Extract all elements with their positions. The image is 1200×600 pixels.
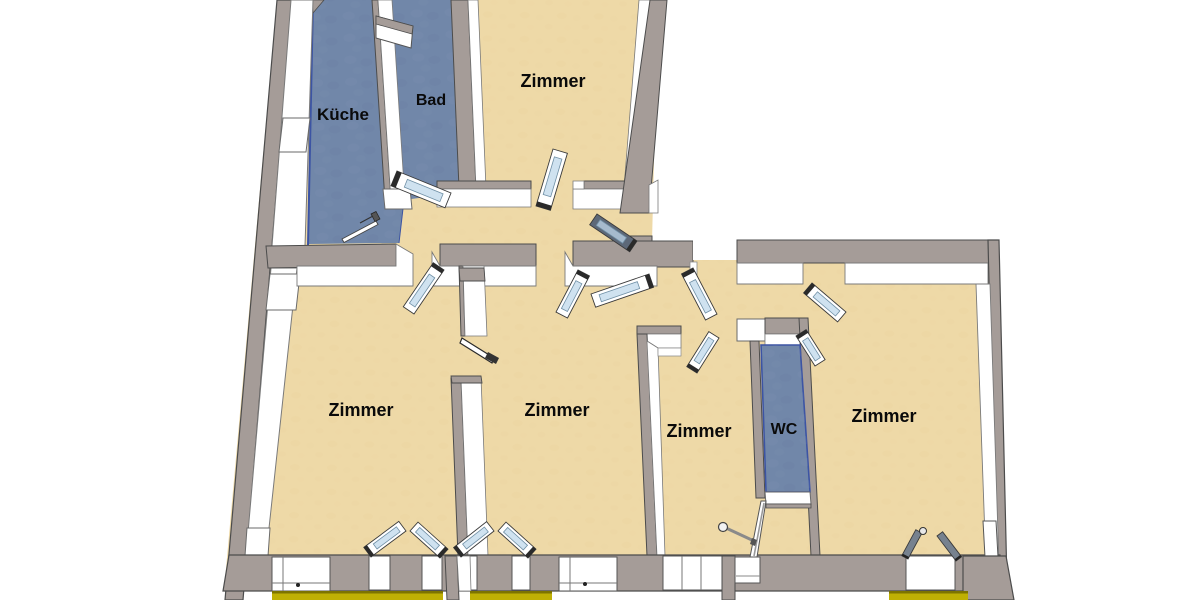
svg-text:Zimmer: Zimmer (328, 400, 393, 420)
svg-text:Zimmer: Zimmer (666, 421, 731, 441)
svg-text:Zimmer: Zimmer (520, 71, 585, 91)
svg-text:WC: WC (771, 421, 798, 438)
svg-text:Küche: Küche (317, 105, 369, 124)
svg-text:Zimmer: Zimmer (524, 400, 589, 420)
svg-text:Zimmer: Zimmer (851, 406, 916, 426)
svg-text:Bad: Bad (416, 92, 446, 109)
